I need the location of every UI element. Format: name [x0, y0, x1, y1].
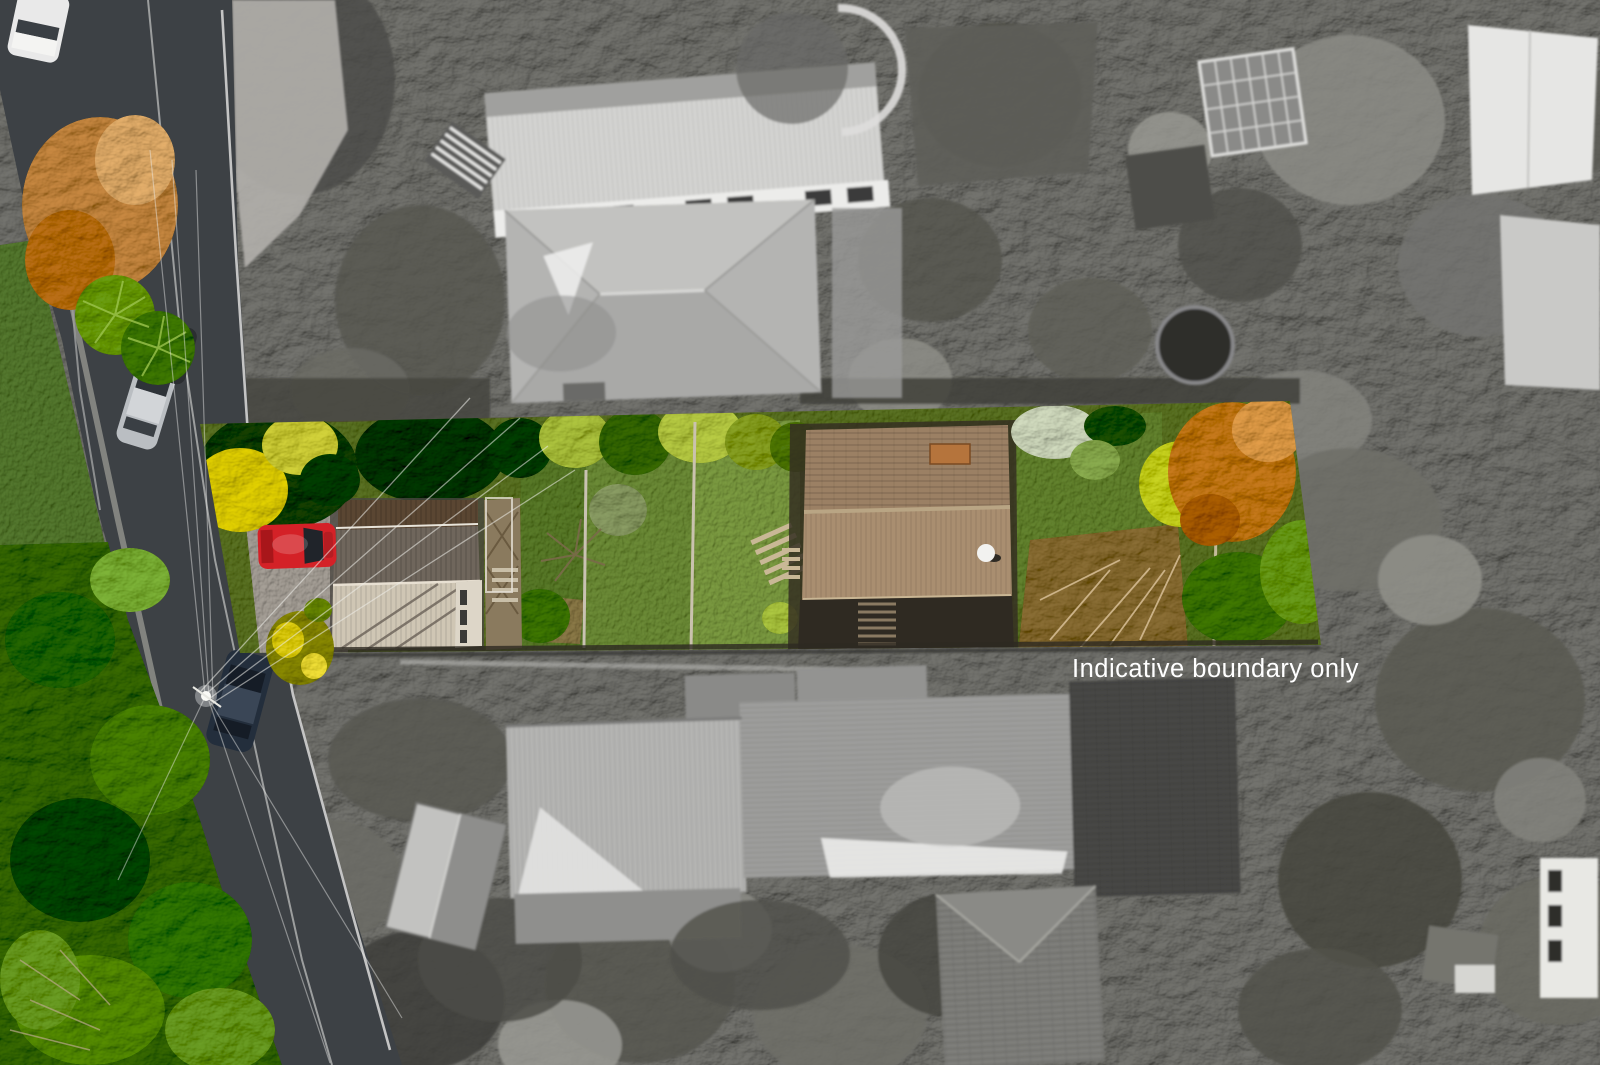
fence-1 [584, 470, 586, 648]
property-highlight [192, 395, 1344, 660]
aerial-photo: Indicative boundary only [0, 0, 1600, 1065]
pale-roof-right [1500, 215, 1600, 390]
round-deck [736, 12, 848, 124]
bottom-right-house [936, 886, 1105, 1065]
watermark-text: Indicative boundary only [1072, 655, 1359, 683]
trampoline [1157, 307, 1233, 383]
red-car [257, 523, 336, 570]
side-wall [455, 580, 482, 648]
glasshouse [1199, 49, 1306, 156]
front-deck [484, 498, 522, 650]
side-deck [832, 208, 902, 398]
aerial-photo-canvas: Indicative boundary only [0, 0, 1600, 1065]
dark-shed [1125, 145, 1215, 230]
neighbor-house-north [502, 200, 822, 404]
front-dwelling [330, 498, 522, 650]
gray-lawn [905, 22, 1098, 186]
roof-patch [930, 444, 970, 464]
rear-dwelling [782, 420, 1018, 654]
dry-scrub [1018, 524, 1188, 652]
white-roof-right [1468, 25, 1598, 195]
